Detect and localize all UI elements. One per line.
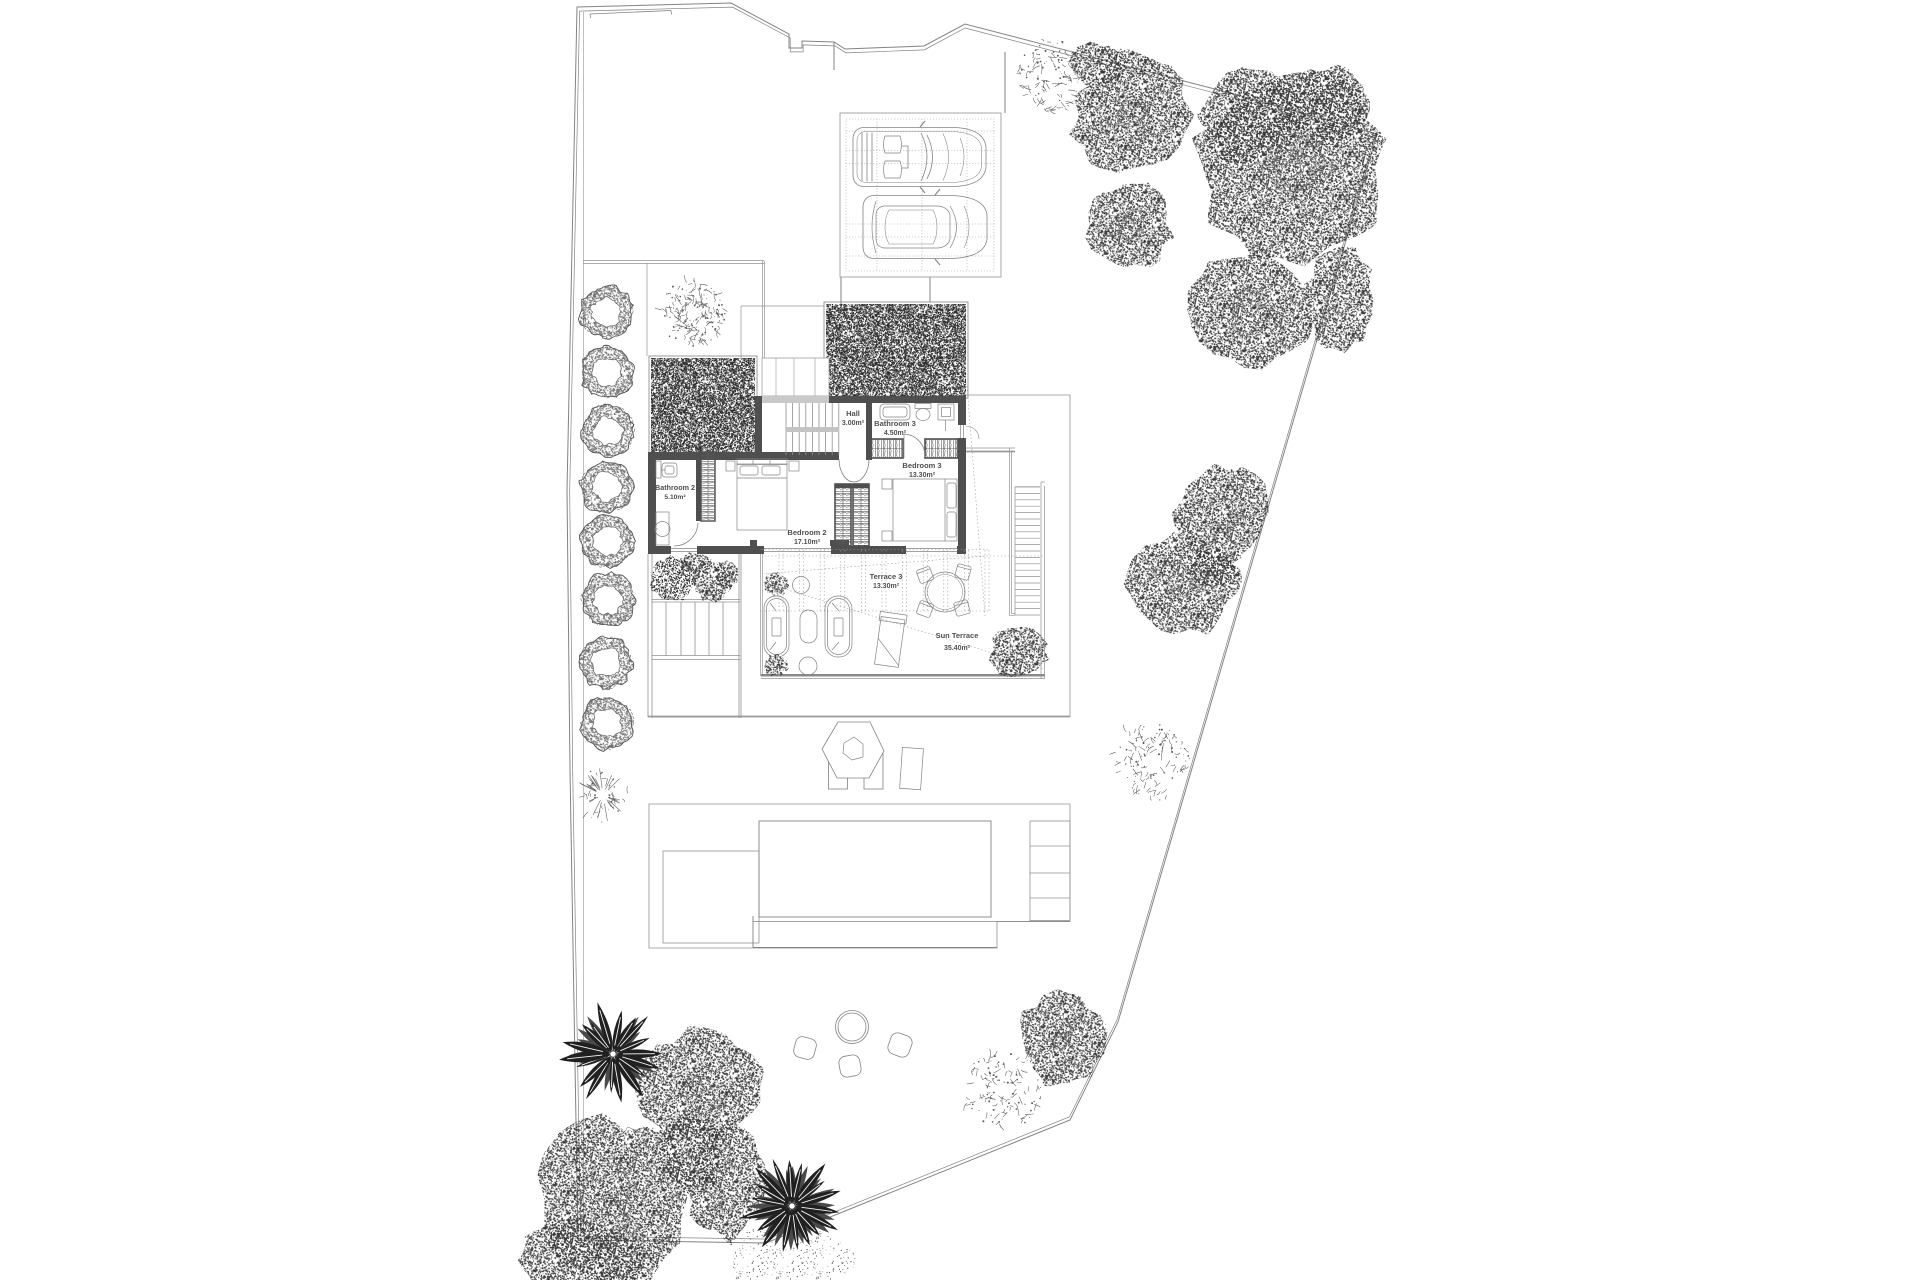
svg-text:5.10m²: 5.10m² — [664, 494, 686, 501]
svg-text:Bedroom 3: Bedroom 3 — [902, 461, 941, 470]
svg-text:35.40m²: 35.40m² — [944, 645, 971, 652]
svg-text:13.30m²: 13.30m² — [909, 472, 936, 479]
svg-text:Terrace 3: Terrace 3 — [870, 572, 903, 581]
svg-text:Sun Terrace: Sun Terrace — [936, 631, 979, 640]
svg-text:Bathroom 2: Bathroom 2 — [655, 483, 695, 492]
svg-text:Bedroom 2: Bedroom 2 — [787, 528, 826, 537]
svg-text:Hall: Hall — [846, 409, 860, 418]
svg-text:13.30m²: 13.30m² — [873, 583, 900, 590]
svg-text:3.00m²: 3.00m² — [842, 420, 865, 427]
svg-text:4.50m²: 4.50m² — [884, 430, 907, 437]
svg-text:Bathroom 3: Bathroom 3 — [874, 419, 916, 428]
svg-text:17.10m²: 17.10m² — [794, 539, 821, 546]
